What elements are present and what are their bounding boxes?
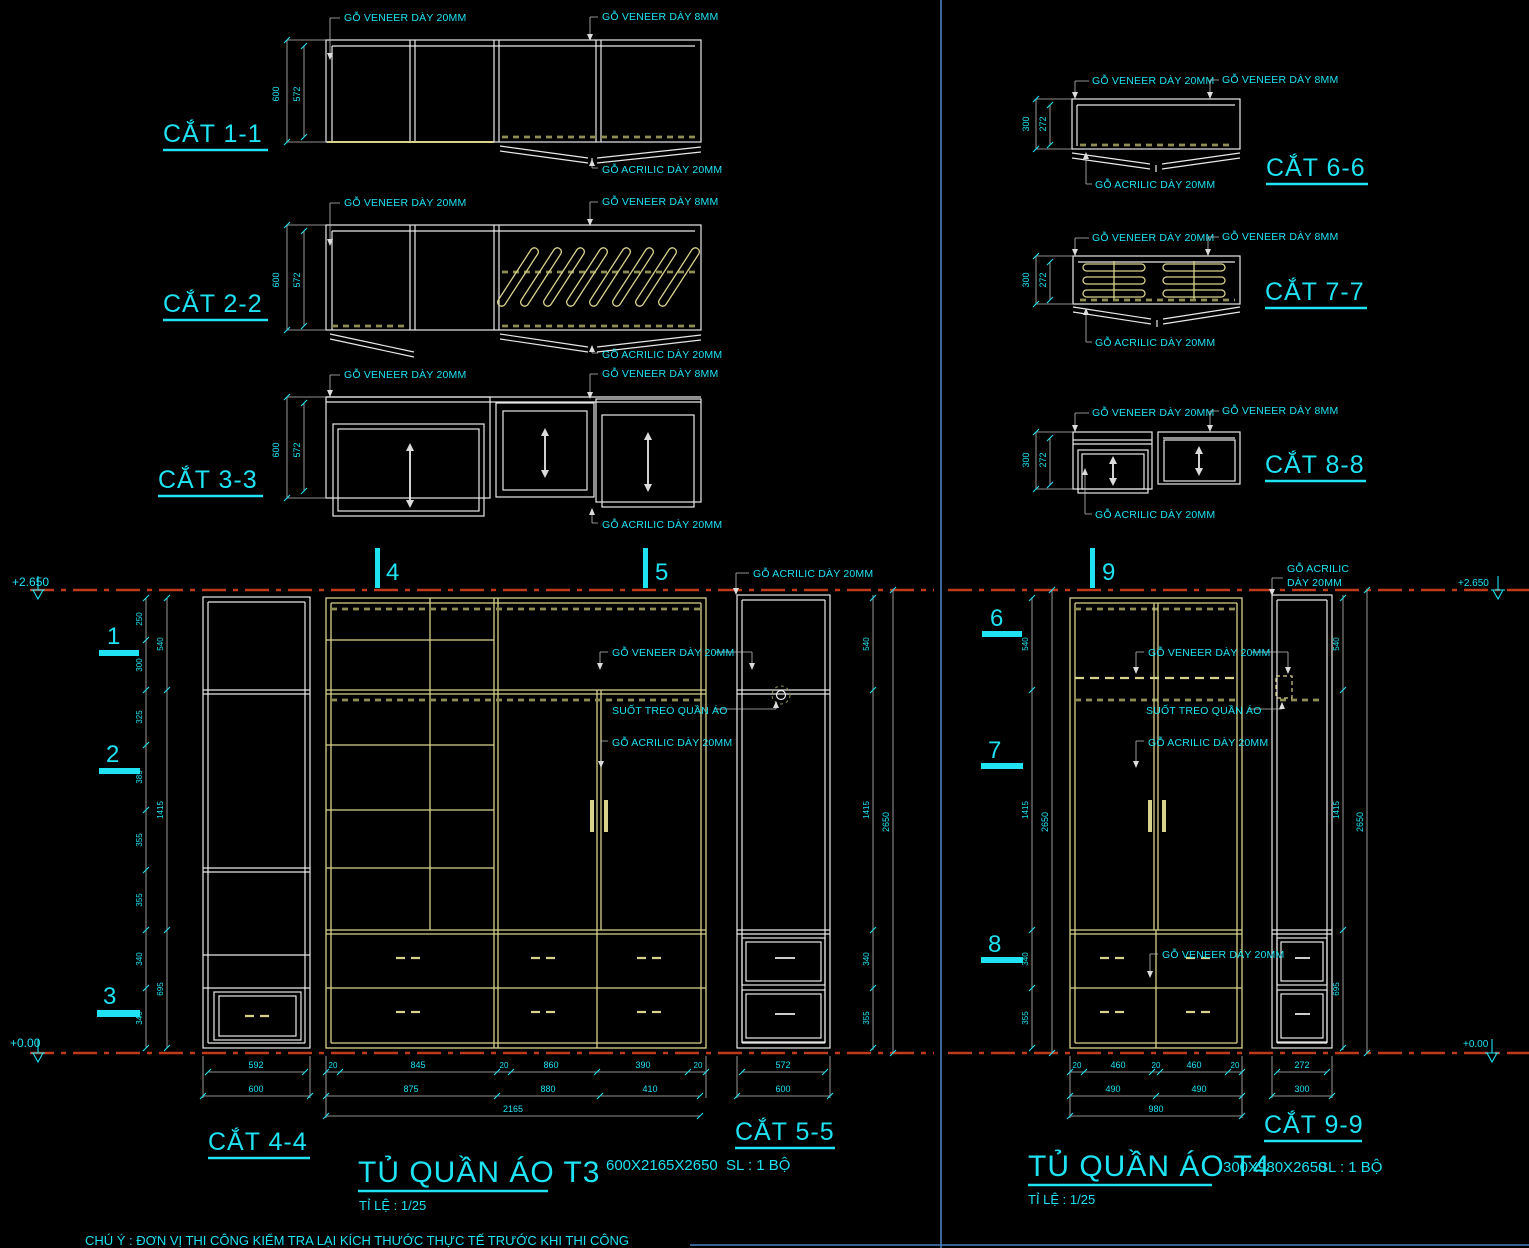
material-label: GỖ ACRILIC DÀY 20MM xyxy=(1095,508,1215,521)
dim: 490 xyxy=(1191,1084,1206,1094)
dim: 20 xyxy=(1231,1061,1240,1070)
t4-width-dims: 20 460 20 460 20 490 490 980 272 300 xyxy=(1067,1056,1335,1119)
dim: 695 xyxy=(156,982,165,996)
dim-total-width: 980 xyxy=(1148,1104,1163,1114)
dim-total-height: 2650 xyxy=(881,812,891,832)
dim-depth-outer: 600 xyxy=(271,272,281,287)
section-marker: 8 xyxy=(988,931,1002,958)
section-title: CẮT 1-1 xyxy=(163,118,263,148)
construction-note: CHÚ Ý : ĐƠN VỊ THI CÔNG KIỂM TRA LẠI KÍC… xyxy=(85,1233,629,1248)
section-cut-7-7: 300 272 GỖ VENEER DÀY 20MM GỖ VENEER DÀY… xyxy=(1021,230,1367,349)
material-label: GỖ VENEER DÀY 20MM xyxy=(344,196,466,209)
dim: 540 xyxy=(156,637,165,651)
material-label: GỖ VENEER DÀY 8MM xyxy=(602,367,718,380)
t4-front xyxy=(1070,598,1242,1048)
section-title: CẮT 2-2 xyxy=(163,288,263,318)
material-label: GỖ ACRILIC DÀY 20MM xyxy=(602,518,722,531)
dim: 300 xyxy=(135,658,144,672)
material-label: GỖ ACRILIC DÀY 20MM xyxy=(1095,178,1215,191)
door-knob xyxy=(777,691,786,700)
section-cut-2-2: 600 572 GỖ VENEER DÀY 20MM GỖ VENEER DÀY… xyxy=(163,195,722,361)
section-marker: 4 xyxy=(386,559,400,586)
dim: 1415 xyxy=(1332,801,1341,819)
section-title: CẮT 8-8 xyxy=(1265,449,1365,479)
t3-annotations: GỖ VENEER DÀY 20MM SUỐT TREO QUẦN ÁO GỖ … xyxy=(597,567,873,768)
level-value: +2.650 xyxy=(1458,578,1489,589)
material-label: GỖ VENEER DÀY 8MM xyxy=(602,10,718,23)
dim-depth-inner: 272 xyxy=(1038,116,1048,131)
material-label: GỖ VENEER DÀY 8MM xyxy=(602,195,718,208)
material-label: GỖ VENEER DÀY 8MM xyxy=(1222,73,1338,86)
dim: 272 xyxy=(1294,1060,1309,1070)
dim: 20 xyxy=(1073,1061,1082,1070)
section-title: CẮT 3-3 xyxy=(158,464,258,494)
dim-depth-outer: 300 xyxy=(1021,452,1031,467)
clothes-hangers xyxy=(496,246,701,307)
dim-depth-outer: 300 xyxy=(1021,116,1031,131)
t4-annotations: GỖ VENEER DÀY 20MM SUỐT TREO QUẦN ÁO GỖ … xyxy=(1133,562,1349,978)
material-label: GỖ ACRILIC DÀY 20MM xyxy=(753,567,873,580)
dim: 540 xyxy=(862,637,871,651)
dim-depth-inner: 572 xyxy=(292,272,302,287)
section-cut-1-1: 600 572 GỖ VENEER DÀY 20MM GỖ VENEER DÀY… xyxy=(163,10,722,176)
section-cut-6-6: 300 272 GỖ VENEER DÀY 20MM GỖ VENEER DÀY… xyxy=(1021,73,1368,191)
drawing-title: TỦ QUẦN ÁO T3 xyxy=(358,1155,600,1189)
section-cut-3-3: 600 572 GỖ VENEER DÀY 20MM GỖ VENEER DÀY… xyxy=(158,367,722,531)
dim-depth-inner: 572 xyxy=(292,86,302,101)
dim: 540 xyxy=(1021,637,1030,651)
dim: 340 xyxy=(135,1011,144,1025)
dim: 390 xyxy=(635,1060,650,1070)
section-marker: 5 xyxy=(655,559,669,586)
dim-depth-outer: 300 xyxy=(1021,272,1031,287)
dim: 490 xyxy=(1105,1084,1120,1094)
dim: 340 xyxy=(135,952,144,966)
material-label: GỖ VENEER DÀY 20MM xyxy=(612,646,734,659)
datum-lines xyxy=(30,590,1529,1053)
dim: 540 xyxy=(1332,637,1341,651)
dim-depth-inner: 272 xyxy=(1038,452,1048,467)
dim-depth-inner: 572 xyxy=(292,442,302,457)
dim: 250 xyxy=(135,612,144,626)
material-label: GỖ VENEER DÀY 20MM xyxy=(1092,74,1214,87)
dim: 1415 xyxy=(1021,801,1030,819)
section-title: CẮT 9-9 xyxy=(1264,1109,1364,1139)
material-label: GỖ ACRILIC DÀY 20MM xyxy=(602,163,722,176)
section-marker: 7 xyxy=(988,737,1002,764)
dim: 460 xyxy=(1186,1060,1201,1070)
dim: 385 xyxy=(135,770,144,784)
material-label: GỖ VENEER DÀY 20MM xyxy=(1162,948,1284,961)
dim: 20 xyxy=(694,1061,703,1070)
dim-total-height: 2650 xyxy=(1040,812,1050,832)
level-marker-bottom-right: +0.00 xyxy=(1463,1039,1499,1062)
level-marker-top-left: +2.650 xyxy=(12,575,49,599)
dim-depth-outer: 600 xyxy=(271,442,281,457)
section-marker: 6 xyxy=(990,605,1004,632)
material-label: GỖ ACRILIC xyxy=(1287,562,1349,575)
drawing-qty: SL : 1 BỘ xyxy=(1318,1159,1382,1176)
cad-drawing: +2.650 +0.00 +2.650 +0.00 600 572 GỖ VEN… xyxy=(0,0,1529,1248)
dim: 860 xyxy=(543,1060,558,1070)
dim: 592 xyxy=(248,1060,263,1070)
t3-section-markers: 1 2 3 4 5 xyxy=(97,548,669,1017)
dim: 695 xyxy=(1332,982,1341,996)
section-title: CẮT 5-5 xyxy=(735,1116,835,1146)
drawing-qty: SL : 1 BỘ xyxy=(726,1157,790,1174)
drawing-scale: TỈ LỆ : 1/25 xyxy=(359,1198,426,1213)
clothes-hangers xyxy=(1083,261,1225,299)
dim: 875 xyxy=(403,1084,418,1094)
section-marker: 3 xyxy=(103,983,117,1010)
material-label: GỖ VENEER DÀY 8MM xyxy=(1222,404,1338,417)
level-marker-top-right: +2.650 xyxy=(1458,576,1505,599)
section-marker: 9 xyxy=(1102,559,1116,586)
section-title: CẮT 7-7 xyxy=(1265,276,1365,306)
dim: 600 xyxy=(775,1084,790,1094)
material-label: GỖ VENEER DÀY 20MM xyxy=(1092,406,1214,419)
material-label: GỖ ACRILIC DÀY 20MM xyxy=(612,736,732,749)
dim: 572 xyxy=(775,1060,790,1070)
t3-side-section xyxy=(203,597,310,1048)
t3-titles: CẮT 4-4 CẮT 5-5 TỦ QUẦN ÁO T3 TỈ LỆ : 1/… xyxy=(208,1116,835,1213)
dim-total-width: 2165 xyxy=(503,1104,523,1114)
dim: 460 xyxy=(1110,1060,1125,1070)
dim: 300 xyxy=(1294,1084,1309,1094)
drawing-size: 600X2165X2650 xyxy=(606,1157,718,1174)
material-label: GỖ VENEER DÀY 20MM xyxy=(344,11,466,24)
level-value: +2.650 xyxy=(12,575,49,589)
material-label: GỖ VENEER DÀY 8MM xyxy=(1222,230,1338,243)
material-label: GỖ VENEER DÀY 20MM xyxy=(344,368,466,381)
t3-right-column xyxy=(737,595,830,1048)
dim: 1415 xyxy=(156,801,165,819)
dim: 20 xyxy=(1152,1061,1161,1070)
hanger-rail-label: SUỐT TREO QUẦN ÁO xyxy=(612,703,728,717)
dim: 20 xyxy=(500,1061,509,1070)
t4-section-markers: 6 7 8 9 xyxy=(981,548,1116,963)
material-label: GỖ ACRILIC DÀY 20MM xyxy=(1148,736,1268,749)
level-marker-bottom-left: +0.00 xyxy=(10,1036,45,1062)
dim: 340 xyxy=(862,952,871,966)
t3-width-dims: 592 600 20 845 20 860 390 20 875 880 410… xyxy=(200,1056,833,1119)
material-label: GỖ VENEER DÀY 20MM xyxy=(1148,646,1270,659)
drawing-scale: TỈ LỆ : 1/25 xyxy=(1028,1192,1095,1207)
section-title: CẮT 6-6 xyxy=(1266,152,1366,182)
dim: 355 xyxy=(1021,1011,1030,1025)
section-marker: 1 xyxy=(107,623,121,650)
t3-height-dims: 250 300 325 385 355 355 340 340 540 1415… xyxy=(135,587,896,1056)
dim: 410 xyxy=(642,1084,657,1094)
dim-depth-outer: 600 xyxy=(271,86,281,101)
dim: 355 xyxy=(862,1011,871,1025)
dim: 355 xyxy=(135,893,144,907)
section-marker: 2 xyxy=(106,741,120,768)
drawing-size: 300X980X2650 xyxy=(1223,1159,1326,1176)
material-label: DÀY 20MM xyxy=(1287,576,1342,589)
dim: 880 xyxy=(540,1084,555,1094)
dim: 20 xyxy=(329,1061,338,1070)
dim: 1415 xyxy=(862,801,871,819)
dim: 340 xyxy=(1021,952,1030,966)
dim: 845 xyxy=(410,1060,425,1070)
level-value: +0.00 xyxy=(10,1036,41,1050)
t4-right-column xyxy=(1272,595,1332,1048)
cad-canvas: +2.650 +0.00 +2.650 +0.00 600 572 GỖ VEN… xyxy=(0,0,1529,1248)
material-label: GỖ ACRILIC DÀY 20MM xyxy=(1095,336,1215,349)
elevation-t4: GỖ VENEER DÀY 20MM SUỐT TREO QUẦN ÁO GỖ … xyxy=(981,548,1382,1207)
section-title: CẮT 4-4 xyxy=(208,1126,308,1156)
dim-total-height: 2650 xyxy=(1355,812,1365,832)
dim: 355 xyxy=(135,833,144,847)
section-cut-8-8: 300 272 GỖ VENEER DÀY 20MM GỖ VENEER DÀY… xyxy=(1021,404,1366,521)
t4-titles: CẮT 9-9 TỦ QUẦN ÁO T4 TỈ LỆ : 1/25 300X9… xyxy=(1028,1109,1382,1207)
hanger-rail-label: SUỐT TREO QUẦN ÁO xyxy=(1146,703,1262,717)
material-label: GỖ ACRILIC DÀY 20MM xyxy=(602,348,722,361)
t3-front xyxy=(326,598,706,1048)
material-label: GỖ VENEER DÀY 20MM xyxy=(1092,231,1214,244)
dim: 325 xyxy=(135,710,144,724)
dim: 600 xyxy=(248,1084,263,1094)
level-value: +0.00 xyxy=(1463,1039,1489,1050)
elevation-t3: GỖ VENEER DÀY 20MM SUỐT TREO QUẦN ÁO GỖ … xyxy=(97,548,896,1213)
dim-depth-inner: 272 xyxy=(1038,272,1048,287)
